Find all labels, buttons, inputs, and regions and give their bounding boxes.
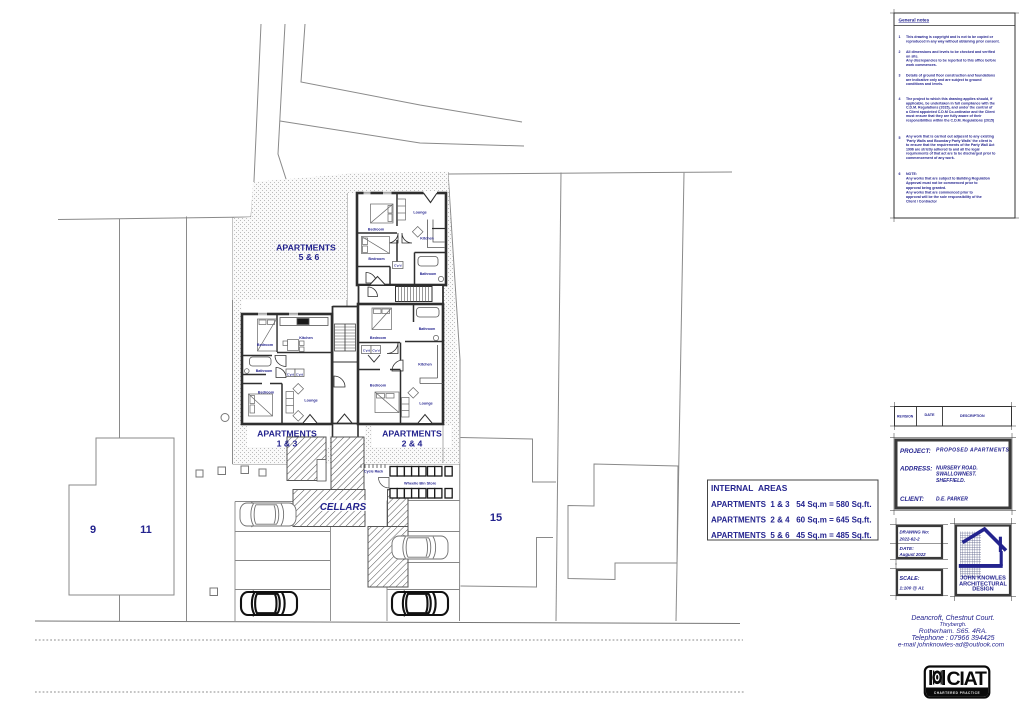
svg-text:Deancroft, Chestnut Court.: Deancroft, Chestnut Court. <box>911 615 994 622</box>
svg-text:Bedroom: Bedroom <box>370 384 387 388</box>
svg-text:August 2022: August 2022 <box>899 552 927 557</box>
svg-text:Client / Contractor: Client / Contractor <box>906 200 938 204</box>
svg-text:CELLARS: CELLARS <box>320 502 367 513</box>
svg-text:2 & 4: 2 & 4 <box>402 439 423 449</box>
svg-text:Lounge: Lounge <box>304 399 317 403</box>
svg-text:11: 11 <box>140 524 152 536</box>
svg-text:APARTMENTS 2 & 4 60 Sq.m =: APARTMENTS 2 & 4 60 Sq.m = 645 Sq.ft. <box>711 516 872 525</box>
svg-text:conditions and levels.: conditions and levels. <box>906 82 943 86</box>
svg-text:ADDRESS:: ADDRESS: <box>899 466 932 473</box>
svg-text:1 & 3: 1 & 3 <box>277 439 298 449</box>
svg-text:CIAT: CIAT <box>947 668 988 690</box>
svg-text:Lounge: Lounge <box>413 211 426 215</box>
svg-text:Wheelie Bin Store: Wheelie Bin Store <box>404 482 436 486</box>
svg-text:APARTMENTS 1 & 3 54 Sq.m =: APARTMENTS 1 & 3 54 Sq.m = 580 Sq.ft. <box>711 500 872 509</box>
svg-text:e-mail johnknowles-ad@outlook.: e-mail johnknowles-ad@outlook.com <box>898 642 1005 649</box>
svg-text:Any works that are subject to: Any works that are subject to Building R… <box>906 177 990 181</box>
svg-text:Bathroom: Bathroom <box>420 272 437 276</box>
svg-text:5: 5 <box>899 136 901 140</box>
svg-text:2: 2 <box>899 50 901 54</box>
svg-text:Lounge: Lounge <box>419 402 432 406</box>
svg-text:INTERNAL AREAS: INTERNAL AREAS <box>711 483 788 493</box>
svg-text:Bathroom: Bathroom <box>419 327 436 331</box>
svg-text:C'p'd: C'p'd <box>363 349 370 353</box>
svg-text:Cycle Rack: Cycle Rack <box>364 470 383 474</box>
svg-text:PROPOSED APARTMENTS: PROPOSED APARTMENTS <box>936 448 1009 454</box>
svg-text:5 & 6: 5 & 6 <box>299 252 320 262</box>
svg-text:Rotherham. S65. 4RA.: Rotherham. S65. 4RA. <box>919 628 987 635</box>
svg-text:APARTMENTS 5 & 6 45 Sq.m =: APARTMENTS 5 & 6 45 Sq.m = 485 Sq.ft. <box>711 531 872 540</box>
svg-text:APARTMENTS: APARTMENTS <box>257 429 317 439</box>
svg-text:Bedroom: Bedroom <box>368 228 385 232</box>
svg-text:work commences.: work commences. <box>905 63 937 67</box>
svg-text:responsibilities within the C.: responsibilities within the C.D.M. Regul… <box>906 119 994 123</box>
svg-text:DATE: DATE <box>925 413 936 417</box>
svg-text:C'p'd: C'p'd <box>394 264 402 268</box>
svg-text:Approval must not be commenced: Approval must not be commenced prior to <box>906 181 978 185</box>
svg-text:DRAWING No:: DRAWING No: <box>900 530 930 535</box>
svg-text:SWALLOWNEST.: SWALLOWNEST. <box>936 472 976 478</box>
svg-text:DESIGN: DESIGN <box>972 587 993 593</box>
svg-text:6: 6 <box>899 172 901 176</box>
svg-text:Bedroom: Bedroom <box>257 343 274 347</box>
svg-text:APARTMENTS: APARTMENTS <box>276 243 336 253</box>
svg-text:Bathroom: Bathroom <box>256 369 273 373</box>
svg-text:REVISION: REVISION <box>897 415 914 419</box>
svg-text:All dimensions and levels to b: All dimensions and levels to be checked … <box>906 50 995 54</box>
svg-text:SCALE:: SCALE: <box>900 576 920 582</box>
svg-text:1: 1 <box>899 35 901 39</box>
svg-text:D.E. PARKER: D.E. PARKER <box>936 497 968 503</box>
svg-text:approval will be the sole resp: approval will be the sole responsibility… <box>906 195 982 199</box>
svg-text:APARTMENTS: APARTMENTS <box>382 429 442 439</box>
svg-text:3: 3 <box>899 74 901 78</box>
svg-text:C'p'd: C'p'd <box>296 372 303 376</box>
svg-text:approval being granted.: approval being granted. <box>906 186 946 190</box>
svg-text:PROJECT:: PROJECT: <box>900 448 931 455</box>
svg-text:CLIENT:: CLIENT: <box>900 496 924 503</box>
svg-text:Any works that are commenced p: Any works that are commenced prior to <box>906 190 974 194</box>
svg-text:Bedroom: Bedroom <box>370 336 387 340</box>
svg-text:C'p'd: C'p'd <box>287 372 294 376</box>
svg-text:Kitchen: Kitchen <box>420 237 434 241</box>
svg-text:SHEFFIELD.: SHEFFIELD. <box>936 478 965 484</box>
svg-text:commencement of any work.: commencement of any work. <box>906 156 955 160</box>
svg-text:Bedroom: Bedroom <box>368 257 385 261</box>
svg-text:DESCRIPTION: DESCRIPTION <box>960 414 985 418</box>
svg-text:Kitchen: Kitchen <box>418 363 432 367</box>
svg-text:15: 15 <box>490 512 502 524</box>
svg-text:CHARTERED PRACTICE: CHARTERED PRACTICE <box>934 691 980 695</box>
svg-text:NURSERY ROAD.: NURSERY ROAD. <box>936 466 978 472</box>
svg-text:9: 9 <box>90 524 96 536</box>
svg-text:4: 4 <box>899 97 901 101</box>
svg-text:NOTE:: NOTE: <box>906 172 917 176</box>
svg-text:2022-62-2: 2022-62-2 <box>899 537 921 542</box>
svg-text:C'p'd: C'p'd <box>372 349 379 353</box>
svg-text:General notes: General notes <box>899 18 930 23</box>
svg-text:Kitchen: Kitchen <box>299 336 313 340</box>
svg-text:reproduced in any way without: reproduced in any way without obtaining … <box>906 39 1000 43</box>
svg-text:1:100 @ A1: 1:100 @ A1 <box>900 586 925 591</box>
